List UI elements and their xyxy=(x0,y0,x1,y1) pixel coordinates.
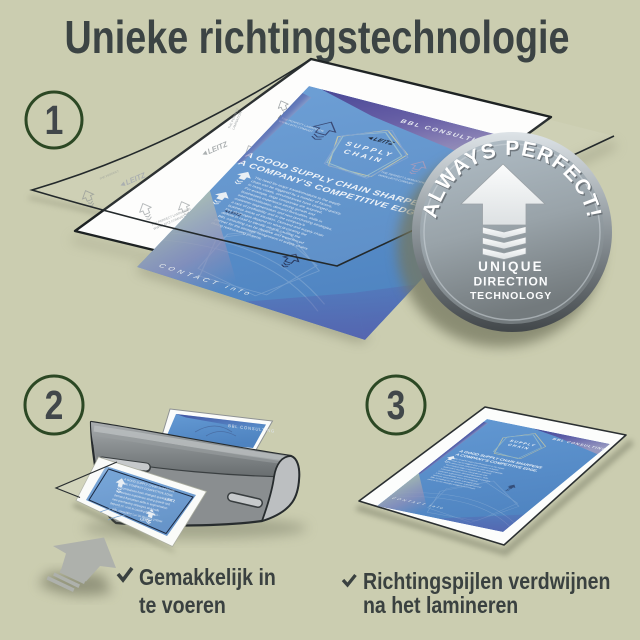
svg-text:na het lamineren: na het lamineren xyxy=(363,593,518,619)
svg-text:te voeren: te voeren xyxy=(139,593,226,619)
svg-text:Richtingspijlen verdwijnen: Richtingspijlen verdwijnen xyxy=(363,569,610,595)
svg-text:TECHNOLOGY: TECHNOLOGY xyxy=(470,290,552,302)
svg-text:2: 2 xyxy=(45,382,64,428)
svg-text:Unieke richtingstechnologie: Unieke richtingstechnologie xyxy=(65,11,570,62)
svg-text:Gemakkelijk in: Gemakkelijk in xyxy=(139,565,276,591)
svg-text:DIRECTION: DIRECTION xyxy=(474,275,549,289)
svg-text:UNIQUE: UNIQUE xyxy=(478,259,544,274)
svg-text:3: 3 xyxy=(387,382,406,428)
svg-text:1: 1 xyxy=(45,97,64,143)
